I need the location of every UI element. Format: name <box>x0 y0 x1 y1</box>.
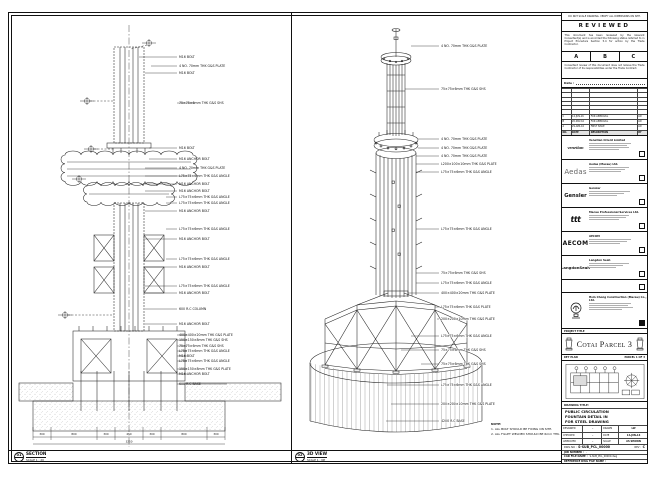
address-line <box>589 303 631 304</box>
banner-ornament-left-icon <box>564 337 574 351</box>
address-line <box>589 195 617 196</box>
grade-c-cell: C <box>619 52 647 62</box>
drawing-title-line: FOR STEEL DRAWING <box>565 420 647 425</box>
consultant-row-aecom: AECOM AECOM <box>562 232 647 256</box>
consultant-checkbox <box>639 199 645 205</box>
callout-label: 150×150×8mm THK G&S SHS <box>179 338 228 342</box>
consultant-row-venetian: venetian Venetian Orient Limited <box>562 136 647 160</box>
bottom-title-strip <box>9 450 561 463</box>
job-number-label: JOB NUMBER : <box>564 451 584 454</box>
section-foundation <box>19 371 281 431</box>
callout-label: 400×400×20mm THK G&S PLATE <box>179 333 233 337</box>
consultant-row-mps: ttt Macau Professional Services Ltd. <box>562 208 647 232</box>
callout-label: L75×75×6mm THK G&S ANGLE <box>441 227 492 231</box>
callout-label: L75×75×6mm THK G&S ANGLE <box>179 284 230 288</box>
consultant-checkbox <box>639 284 645 290</box>
callout-label: L75×75×6mm THK G&S ANGLE <box>179 257 230 261</box>
langdonseah-logo: LangdonSeah <box>562 256 589 279</box>
key-plan-label: KEY PLAN <box>564 355 578 360</box>
callout-label: M16 BOLT <box>179 146 195 150</box>
address-line <box>589 143 631 144</box>
venetian-logo-text: venetian <box>567 145 583 150</box>
notes-title: NOTE: <box>491 422 501 426</box>
section-level-markers <box>58 39 156 319</box>
approved-value: - <box>582 438 601 444</box>
cad-file-value: S-SUB_PCL_00000.dwg <box>590 455 617 458</box>
dim-label: 800 <box>181 432 186 436</box>
drawing-sheet-canvas: M16 BOLT 4 NO. 70mm THK G&S PLATE M16 BO… <box>0 0 650 488</box>
iso-notes: NOTE: 1. ALL BOLT SHOULD BE FIXING ON SI… <box>491 422 560 436</box>
contractor-checkbox <box>639 320 645 326</box>
address-line <box>589 309 622 310</box>
address-line <box>589 307 633 308</box>
key-plan-graphic <box>562 361 647 402</box>
gensler-logo-text: Gensler <box>564 193 586 199</box>
grade-b-cell: B <box>590 52 618 62</box>
langdonseah-logo-text: LangdonSeah <box>562 265 590 270</box>
consultant-checkbox <box>639 247 645 253</box>
callout-label: L75×75×6mm THK G&S ANGLE <box>441 334 492 338</box>
key-plan-map <box>565 363 645 400</box>
callout-label: 4200 R.C BASE <box>441 419 465 423</box>
stamp-date-row: Date : <box>562 79 647 88</box>
callout-label: M16 BOLT <box>179 71 195 75</box>
dwg-no-label: DWG NO : <box>564 446 577 449</box>
key-plan-ref: PARCEL 1 OF 3 <box>624 355 645 360</box>
drawing-title-block: DRAWING TITLE: PUBLIC CIRCULATION FOUNTA… <box>562 402 647 463</box>
callout-label: L75×75×6mm THK G&S ANGLE <box>441 170 492 174</box>
iso-drawing: 4 NO. 70mm THK G&S PLATE 75×75×6mm THK G… <box>291 13 561 451</box>
project-name: Cotai Parcel 3 <box>577 340 633 349</box>
address-line <box>589 239 631 240</box>
consultant-checkbox <box>639 271 645 277</box>
callout-label: 400×400×20mm THK G&S PLATE <box>441 291 495 295</box>
reference-dwg-label: REFERENCE DWG FILE NAME : <box>564 460 606 463</box>
consultant-name: AECOM <box>589 235 647 238</box>
callout-label: 4 NO. 70mm THK G&S PLATE <box>441 137 487 141</box>
iso-mid-flange <box>374 130 418 152</box>
cad-file-label: CAD FILE NAME : <box>564 455 588 458</box>
callout-label: 75×75×6mm THK G&S SHS <box>441 87 486 91</box>
address-line <box>589 147 629 148</box>
address-line <box>589 167 629 168</box>
contractor-name: Hsin Chong Construction (Macau) Co., Ltd… <box>589 296 647 302</box>
address-line <box>589 145 627 146</box>
callout-label: L75×75×6mm THK G&S ANGLE <box>179 201 230 205</box>
address-line <box>589 169 625 170</box>
section-drawing: M16 BOLT 4 NO. 70mm THK G&S PLATE M16 BO… <box>9 13 291 451</box>
title-block-fields: DESIGNED - DRAWN LW CHECKED - DATE 14-JU… <box>562 426 647 445</box>
stamp-body-1: This document has been reviewed by the r… <box>562 32 647 52</box>
consultant-row-langdonseah: LangdonSeah Langdon Seah <box>562 256 647 280</box>
section-callout-labels: M16 BOLT 4 NO. 70mm THK G&S PLATE M16 BO… <box>179 55 233 386</box>
contractor-block: Hsin Chong Construction (Macau) Co., Ltd… <box>562 293 647 329</box>
callout-label: L200×100×10mm THK G&S PLATE <box>441 162 497 166</box>
callout-label: 75×75×6mm THK G&S SHS <box>441 271 486 275</box>
address-line <box>589 149 619 150</box>
disclaimer-note: DO NOT SCALE DRAWING. VERIFY ALL DIMENSI… <box>562 13 647 21</box>
dim-label: 300 <box>103 432 108 436</box>
iso-view-panel: 4 NO. 70mm THK G&S PLATE 75×75×6mm THK G… <box>291 13 562 463</box>
mps-logo-text: ttt <box>571 215 581 224</box>
aecom-logo: AECOM <box>562 232 589 255</box>
address-line <box>589 241 627 242</box>
iso-leader-lines <box>386 46 439 421</box>
iso-finial <box>381 29 411 65</box>
callout-label: L75×75×6mm THK G&S ANGLE <box>179 359 230 363</box>
callout-label: L75×75×6mm THK G&S ANGLE <box>441 281 492 285</box>
address-line <box>589 265 623 266</box>
callout-label: M16 ANCHOR BOLT <box>179 291 210 295</box>
dim-label: 300 <box>149 432 154 436</box>
callout-label: L75×75×6mm THK G&S ANGLE <box>179 195 230 199</box>
callout-label: M16 ANCHOR BOLT <box>179 189 210 193</box>
callout-label: L75×75×6mm THK G&S ANGLE <box>179 349 230 353</box>
callout-label: L75×75×6mm THK G&S ANGLE <box>441 383 492 387</box>
revision-table: C14-JUN-16 FOR APPROVALLW B20-MAY-16 FOR… <box>562 88 647 136</box>
stamp-body-2: Consultant review of this document does … <box>562 62 647 79</box>
review-grade-row: A B C <box>562 52 647 62</box>
callout-label: 200×200×10mm THK G&S PLATE <box>441 402 495 406</box>
address-line <box>589 193 624 194</box>
iso-rod-cluster <box>387 63 405 136</box>
banner-ornament-right-icon <box>635 337 645 351</box>
iso-shaft <box>370 148 422 299</box>
section-view-panel: M16 BOLT 4 NO. 70mm THK G&S PLATE M16 BO… <box>9 13 292 463</box>
contractor-logo-icon <box>568 302 584 320</box>
mps-logo: ttt <box>562 208 589 231</box>
note-item: 2. ALL FILLET WELDED SHOULD BE 6mm THK. <box>491 432 560 436</box>
aedas-logo-text: Aedas <box>564 168 586 176</box>
callout-label: M16 ANCHOR BOLT <box>179 322 210 326</box>
project-banner: Cotai Parcel 3 <box>562 334 647 355</box>
gensler-logo: Gensler <box>562 184 589 207</box>
address-line <box>589 217 626 218</box>
callout-label: M16 ANCHOR BOLT <box>179 157 210 161</box>
callout-label: 600 R.C BASE <box>179 382 201 386</box>
callout-label: L75×75×6mm THK G&S ANGLE <box>179 227 230 231</box>
drawing-title: PUBLIC CIRCULATION FOUNTAIN DETAIL IN FO… <box>562 409 647 426</box>
callout-label: 75×75×6mm THK G&S SHS <box>179 101 224 105</box>
callout-label: 200×200×10mm THK G&S PLATE <box>441 317 495 321</box>
venetian-logo: venetian <box>562 136 589 159</box>
job-number-value: - <box>586 451 587 454</box>
callout-label: M16 ANCHOR BOLT <box>179 237 210 241</box>
callout-label: M16 ANCHOR BOLT <box>179 372 210 376</box>
callout-label: 4 NO. 70mm THK G&S PLATE <box>441 146 487 150</box>
callout-label: 4 NO. 70mm THK G&S PLATE <box>441 154 487 158</box>
dim-label: 300 <box>39 432 44 436</box>
consultant-name: Langdon Seah <box>589 259 647 262</box>
aecom-logo-text: AECOM <box>563 240 589 247</box>
rev-label: REV : <box>634 446 641 449</box>
contractor-logo <box>562 293 589 328</box>
address-line <box>589 243 620 244</box>
callout-label: M16 ANCHOR BOLT <box>179 265 210 269</box>
revision-table-header: NO.DATE DESCRIPTIONBY <box>562 130 647 135</box>
consultant-name: Venetian Orient Limited <box>589 139 647 142</box>
consultant-checkbox <box>639 175 645 181</box>
dim-label: 300 <box>213 432 218 436</box>
sheet: M16 BOLT 4 NO. 70mm THK G&S PLATE M16 BO… <box>8 12 648 464</box>
callout-label: L75×75×6mm THK G&S PLATE <box>441 305 491 309</box>
dim-label: 800 <box>71 432 76 436</box>
approved-label: APPROVED <box>562 438 582 444</box>
title-block-column: DO NOT SCALE DRAWING. VERIFY ALL DIMENSI… <box>562 13 647 463</box>
consultant-name: Macau Professional Services Ltd. <box>589 211 647 214</box>
rev-value: C <box>643 445 645 449</box>
reviewed-stamp-title: REVIEWED <box>562 21 647 32</box>
drawing-title-label: DRAWING TITLE: <box>562 402 647 409</box>
address-line <box>589 263 629 264</box>
callout-label: 4 NO. 70mm THK G&S PLATE <box>179 166 225 170</box>
address-line <box>589 219 619 220</box>
grade-a-cell: A <box>562 52 590 62</box>
callout-label: M16 BOLT <box>179 55 195 59</box>
address-line <box>589 191 630 192</box>
callout-label: 4 NO. 70mm THK G&S PLATE <box>179 64 225 68</box>
callout-label: 75×75×6mm THK G&S SHS <box>179 344 224 348</box>
consultant-row-aedas: Aedas Aedas (Macau) Ltd. <box>562 160 647 184</box>
aedas-logo: Aedas <box>562 160 589 183</box>
callout-label: 4 NO. 70mm THK G&S PLATE <box>441 44 487 48</box>
address-line <box>589 267 616 268</box>
callout-label: 600 R.C COLUMN <box>179 307 207 311</box>
scale-value: AS SHOWN <box>618 438 647 444</box>
callout-label: 75×75×6mm THK G&S SHS <box>441 348 486 352</box>
callout-label: M16 ANCHOR BOLT <box>179 182 210 186</box>
dim-label: 450 <box>126 432 131 436</box>
dim-total-label: 3250 <box>126 440 133 444</box>
consultant-name: Gensler <box>589 187 647 190</box>
date-label: Date : <box>564 81 574 85</box>
consultant-name: Aedas (Macau) Ltd. <box>589 163 647 166</box>
dwg-no-value: S-SUB_PCL_00000 <box>578 445 610 449</box>
address-line <box>589 215 629 216</box>
date-fill-line <box>576 80 645 85</box>
note-item: 1. ALL BOLT SHOULD BE FIXING ON SITE. <box>491 427 552 431</box>
address-line <box>589 171 621 172</box>
callout-label: 150×150×8mm THK G&S PLATE <box>179 367 231 371</box>
callout-label: 75×75×6mm THK G&S SHS <box>441 362 486 366</box>
callout-label: M16 ANCHOR BOLT <box>179 209 210 213</box>
address-line <box>589 305 628 306</box>
callout-label: L75×75×6mm THK G&S ANGLE <box>179 174 230 178</box>
reference-dwg-row: REFERENCE DWG FILE NAME : <box>562 460 647 463</box>
scale-label: SCALE <box>601 438 618 444</box>
consultant-checkbox <box>639 151 645 157</box>
consultant-row-gensler: Gensler Gensler <box>562 184 647 208</box>
callout-label: M16 BOLT <box>179 354 195 358</box>
consultant-row-blank <box>562 280 647 293</box>
consultant-checkbox <box>639 223 645 229</box>
